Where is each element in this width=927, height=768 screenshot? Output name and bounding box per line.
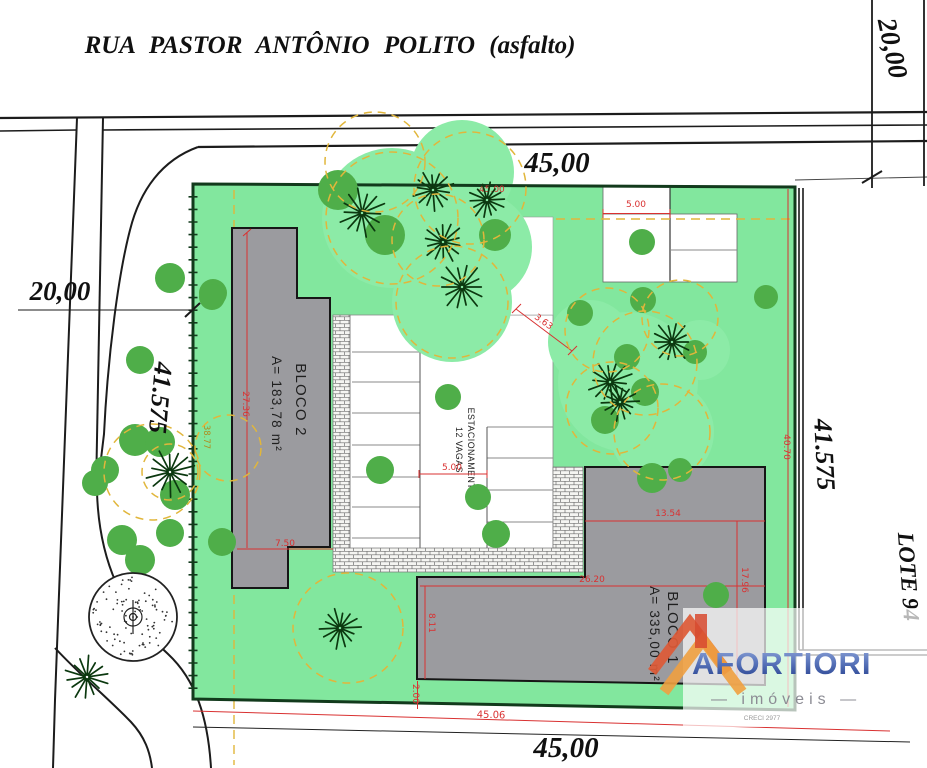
stipple-dot <box>128 588 130 590</box>
tree-circle <box>199 284 225 310</box>
stipple-dot <box>99 624 101 626</box>
tree-circle <box>629 229 655 255</box>
stipple-dot <box>135 601 137 603</box>
stipple-dot <box>147 625 149 627</box>
stipple-dot <box>131 653 133 655</box>
stipple-dot <box>109 626 111 628</box>
tree-circle <box>366 456 394 484</box>
tree-circle <box>318 170 358 210</box>
stipple-dot <box>141 610 143 612</box>
stipple-dot <box>124 651 126 653</box>
dim-entry-width: 5.00 <box>626 200 646 210</box>
tree-circle <box>435 384 461 410</box>
stipple-dot <box>164 619 166 621</box>
stipple-dot <box>155 637 157 639</box>
lote94-west-line <box>799 188 803 650</box>
stipple-dot <box>153 625 155 627</box>
stipple-dot <box>122 604 124 606</box>
dim-aisle-width: 5.00 <box>442 463 462 473</box>
tree-symbol <box>66 655 108 698</box>
stipple-dot <box>106 598 108 600</box>
logo-brand-text: AFORTIORI <box>692 646 872 681</box>
tree-circle <box>482 520 510 548</box>
front-width-label: 45,00 <box>523 147 589 179</box>
street-top-edge2b <box>103 125 927 130</box>
stipple-dot <box>145 600 147 602</box>
tree-circle <box>125 545 155 575</box>
stipple-dot <box>139 645 141 647</box>
stipple-dot <box>101 623 103 625</box>
tree-circle <box>465 484 491 510</box>
sidewalk-line-right <box>795 177 927 180</box>
stipple-dot <box>106 631 108 633</box>
stipple-dot <box>120 653 122 655</box>
stipple-dot <box>123 642 125 644</box>
tree-circle <box>365 215 405 255</box>
stipple-dot <box>125 615 127 617</box>
stipple-dot <box>154 604 156 606</box>
stipple-dot <box>149 642 151 644</box>
stipple-dot <box>103 591 105 593</box>
tree-circle <box>156 519 184 547</box>
tree-circle <box>754 285 778 309</box>
stipple-dot <box>155 589 157 591</box>
tree-circle <box>155 263 185 293</box>
stipple-dot <box>122 579 124 581</box>
site-plan-drawing: BLOCO 2 A= 183,78 m² BLOCO 1 A= 335,00 m… <box>0 0 927 768</box>
dim-bloco1-width: 26.20 <box>579 575 605 585</box>
stipple-dot <box>137 601 139 603</box>
stipple-dot <box>156 609 158 611</box>
stipple-dot <box>125 627 127 629</box>
tree-circle <box>208 528 236 556</box>
dim-bloco2-length: 27.36 <box>240 391 250 417</box>
road-curve-bottom-left-outer <box>55 648 152 768</box>
stipple-dot <box>141 633 143 635</box>
stipple-dot <box>115 591 117 593</box>
stipple-dot <box>131 580 133 582</box>
right-road-width-label: 20,00 <box>872 14 914 81</box>
stipple-dot <box>117 634 119 636</box>
stipple-dot <box>159 632 161 634</box>
stipple-dot <box>156 601 158 603</box>
walkway-west <box>333 315 350 548</box>
stipple-dot <box>146 618 148 620</box>
stipple-dot <box>148 629 150 631</box>
stipple-dot <box>153 622 155 624</box>
stipple-dot <box>112 645 114 647</box>
street-top-edge1 <box>0 112 927 118</box>
stipple-dot <box>142 642 144 644</box>
tree-circle <box>82 470 108 496</box>
stipple-dot <box>166 611 168 613</box>
stipple-dot <box>100 630 102 632</box>
stipple-dot <box>144 592 146 594</box>
stipple-dot <box>132 650 134 652</box>
stipple-dot <box>119 640 121 642</box>
dim-bloco1-top-width: 13.54 <box>655 509 681 519</box>
tree-circle <box>683 340 707 364</box>
stipple-dot <box>165 615 167 617</box>
walkway-south <box>333 548 583 572</box>
dim-bloco1-depth: 17.96 <box>739 567 749 593</box>
plan-canvas: BLOCO 2 A= 183,78 m² BLOCO 1 A= 335,00 m… <box>0 0 927 768</box>
tree-circle <box>567 300 593 326</box>
stipple-dot <box>148 595 150 597</box>
watermark-logo: AFORTIORI — imóveis — CRECI 2977 <box>652 608 927 727</box>
stipple-dot <box>96 601 98 603</box>
stipple-dot <box>114 638 116 640</box>
stipple-dot <box>93 609 95 611</box>
stipple-dot <box>134 611 136 613</box>
stipple-dot <box>130 633 132 635</box>
logo-tagline-text: — imóveis — <box>711 691 861 708</box>
rear-width-label: 45,00 <box>532 732 598 764</box>
right-depth-label: 41.575 <box>808 417 841 491</box>
stipple-dot <box>123 601 125 603</box>
cross-street-right-edge <box>96 118 103 492</box>
stipple-dot <box>92 612 94 614</box>
stipple-dot <box>127 579 129 581</box>
stipple-dot <box>138 600 140 602</box>
tree-circle <box>637 463 667 493</box>
dim-right-inner: 40.70 <box>781 434 791 460</box>
neighbor-lot-label: LOTE 94 <box>893 530 924 621</box>
dim-bloco1-left-depth: 8.11 <box>426 613 436 633</box>
stipple-dot <box>149 636 151 638</box>
stipple-dot <box>125 599 127 601</box>
stipple-dot <box>143 644 145 646</box>
stipple-dot <box>116 603 118 605</box>
tree-circle <box>668 458 692 482</box>
stipple-dot <box>154 606 156 608</box>
stipple-dot <box>129 653 131 655</box>
stipple-dot <box>106 640 108 642</box>
stipple-dot <box>121 584 123 586</box>
dim-left-offset: 38.77 <box>201 425 211 449</box>
left-road-width-label: 20,00 <box>29 276 91 306</box>
street-name-label: RUA PASTOR ANTÔNIO POLITO (asfalto) <box>84 30 576 59</box>
stipple-dot <box>95 609 97 611</box>
stipple-dot <box>131 577 133 579</box>
walkway-east <box>553 467 583 548</box>
stipple-dot <box>108 586 110 588</box>
logo-creci-text: CRECI 2977 <box>744 715 781 722</box>
stipple-dot <box>121 610 123 612</box>
tree-circle <box>703 582 729 608</box>
bloco2-name-label: BLOCO 2 <box>292 363 309 436</box>
stipple-dot <box>157 645 159 647</box>
dim-bloco2-width: 7.50 <box>275 539 295 549</box>
stipple-dot <box>121 601 123 603</box>
stipple-dot <box>113 633 115 635</box>
stipple-dot <box>99 621 101 623</box>
stipple-dot <box>97 624 99 626</box>
stipple-dot <box>152 599 154 601</box>
stipple-dot <box>162 611 164 613</box>
dim-rear-inner: 45.06 <box>477 710 506 722</box>
stipple-dot <box>152 605 154 607</box>
stippled-tree-circle <box>89 573 177 661</box>
stipple-dot <box>117 599 119 601</box>
parking-label-line1: ESTACIONAMENTO <box>466 408 476 497</box>
street-top-edge2a <box>0 130 77 131</box>
stipple-dot <box>138 606 140 608</box>
stipple-dot <box>153 628 155 630</box>
stipple-dot <box>144 646 146 648</box>
dim-rear-strip: 2.00 <box>410 684 420 704</box>
stipple-dot <box>112 608 114 610</box>
bloco2-area-label: A= 183,78 m² <box>269 356 284 452</box>
stipple-dot <box>171 621 173 623</box>
